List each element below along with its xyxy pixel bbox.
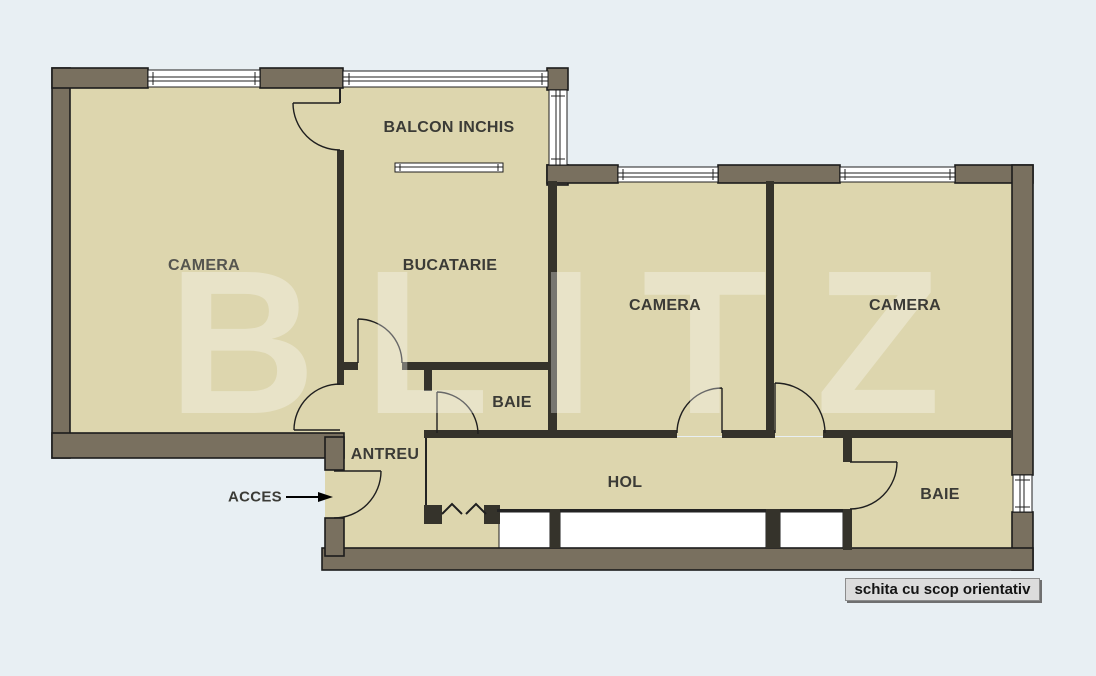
hall-south-line2: [560, 509, 766, 512]
room-label-entry: ANTREU: [351, 446, 419, 464]
wall-camera-kitchen: [337, 150, 344, 385]
room-label-kitchen: BUCATARIE: [403, 257, 498, 275]
room-floors: [70, 86, 1013, 550]
wall-balcony-stub: [339, 88, 341, 103]
room-label-hallway: HOL: [608, 474, 643, 492]
window-balcony-kitchen: [395, 163, 503, 172]
floor-cameras: [556, 181, 1013, 436]
wall-bath-right-west-lower: [843, 509, 852, 550]
wall-east-upper: [1012, 165, 1033, 475]
recess-2: [560, 512, 766, 548]
window-camera-right: [840, 167, 955, 182]
closet-post-left: [424, 505, 442, 524]
room-label-bathroom-center: BAIE: [492, 394, 531, 412]
wall-camera-left-south: [52, 433, 344, 458]
closet-post-right: [484, 505, 500, 524]
recess-3: [780, 512, 843, 548]
floor-entry-doorway: [325, 470, 344, 518]
wall-west: [52, 68, 70, 458]
floor-plan-canvas: BLITZ BALCON INCHIS CAMERA BUCATARIE CAM…: [0, 0, 1096, 676]
wall-hall-north-seg3: [823, 430, 1012, 438]
window-balcony-east: [549, 90, 567, 165]
wall-camera-middle-west: [548, 181, 557, 434]
disclaimer-text: schita cu scop orientativ: [855, 581, 1031, 598]
wall-north-corner: [52, 68, 148, 88]
wall-hall-north-seg1: [424, 430, 677, 438]
wall-cameras-partition: [766, 181, 774, 433]
wall-entry-west-upper: [325, 437, 344, 470]
wall-hall-north-seg2: [722, 430, 775, 438]
wall-bath-center-west: [424, 370, 432, 391]
window-camera-middle: [618, 167, 718, 182]
wall-north2-seg1: [547, 165, 618, 183]
hall-south-post2: [766, 509, 780, 548]
recess-1: [499, 512, 550, 548]
acces-label: ACCES: [228, 489, 282, 506]
hall-south-post1: [550, 509, 560, 548]
wall-north-pier: [260, 68, 343, 88]
window-camera-left: [148, 70, 260, 87]
wall-south: [322, 548, 1033, 570]
room-label-balcony: BALCON INCHIS: [383, 119, 514, 137]
room-label-camera-right: CAMERA: [869, 297, 941, 315]
wall-kitchen-south-seg1: [344, 362, 358, 370]
wall-bath-right-west-upper: [843, 438, 852, 462]
floor-plan-drawing: [0, 0, 1096, 676]
wall-balcony-ne-pier: [547, 68, 568, 90]
entry-hall-opening-line: [425, 438, 427, 506]
hall-south-line3: [780, 509, 843, 512]
disclaimer-badge: schita cu scop orientativ: [845, 578, 1040, 601]
room-label-camera-left: CAMERA: [168, 257, 240, 275]
wall-entry-west-lower: [325, 518, 344, 556]
wall-north2-pier: [718, 165, 840, 183]
wall-kitchen-south-seg2: [402, 362, 548, 370]
room-label-bathroom-right: BAIE: [920, 486, 959, 504]
room-label-camera-middle: CAMERA: [629, 297, 701, 315]
hall-south-line1: [497, 509, 552, 512]
window-balcony-north: [343, 71, 548, 87]
window-bathroom-right: [1013, 475, 1032, 512]
